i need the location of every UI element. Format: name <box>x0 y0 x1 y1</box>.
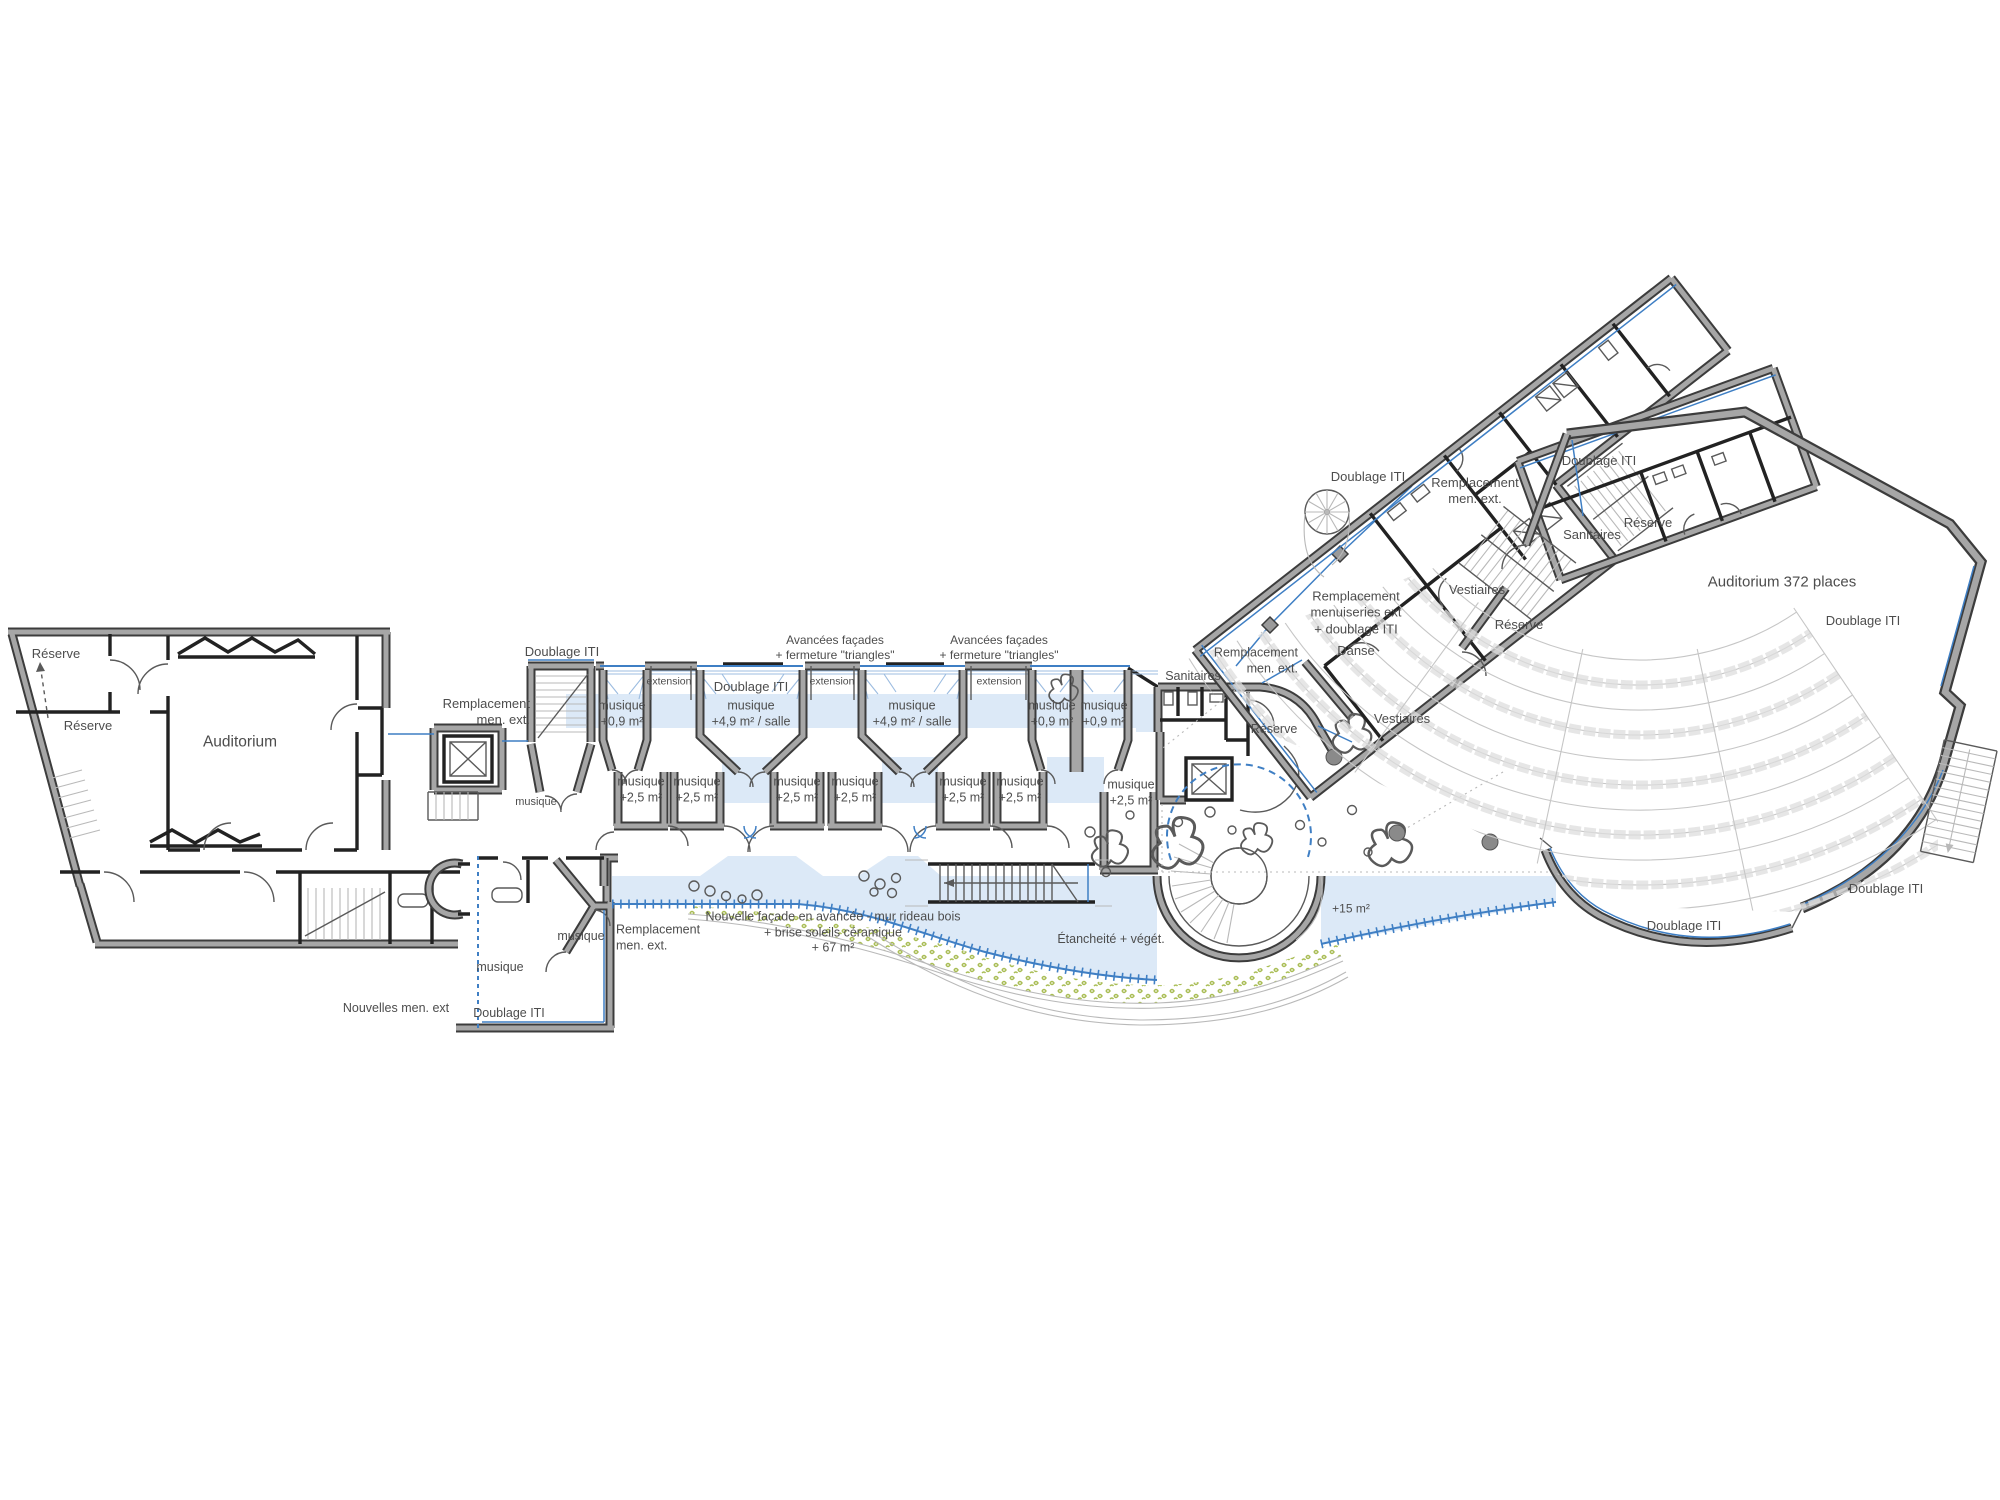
label-musique-annex-2: musique <box>476 960 523 976</box>
floor-plan-page: Réserve Réserve Auditorium Remplacement … <box>0 0 2000 1500</box>
label-vestiaires-2: Vestiaires <box>1374 711 1430 727</box>
label-musique-25-3: musique +2,5 m² <box>773 774 820 805</box>
label-doublage-iti-4: Doublage ITI <box>1562 453 1636 469</box>
label-repl-men-ext-4: Remplacement men. ext. <box>616 922 700 953</box>
label-etancheite: Étancheité + végét. <box>1057 932 1164 948</box>
label-vestiaires-1: Vestiaires <box>1449 582 1505 598</box>
auditorium-372 <box>1155 412 1997 942</box>
label-extension-1: extension <box>647 675 692 688</box>
label-avancees-1: Avancées façades + fermeture "triangles" <box>776 633 895 663</box>
label-musique-mini: musique <box>515 796 557 810</box>
label-doublage-iti-1: Doublage ITI <box>525 644 599 660</box>
label-musique-25-5: musique +2,5 m² <box>939 774 986 805</box>
floor-plan-drawing <box>0 0 2000 1500</box>
label-reserve-right-1: Réserve <box>1624 515 1672 531</box>
left-building <box>8 632 470 944</box>
label-repl-men-ext-2: Remplacement men. ext. <box>1214 645 1298 676</box>
stair-and-elevator-block <box>388 660 594 820</box>
label-musique-09-1: musique +0,9 m² <box>598 698 645 729</box>
dance-complex <box>1195 278 1786 797</box>
label-avancees-2: Avancées façades + fermeture "triangles" <box>940 633 1059 663</box>
label-doublage-iti-3: Doublage ITI <box>1331 469 1405 485</box>
label-auditorium-372: Auditorium 372 places <box>1708 574 1856 593</box>
label-doublage-iti-2: Doublage ITI <box>714 679 788 695</box>
label-extension-3: extension <box>977 675 1022 688</box>
label-auditorium-left: Auditorium <box>203 732 277 751</box>
label-nouvelle-facade: Nouvelle façade en avancée - mur rideau … <box>705 910 960 957</box>
label-doublage-iti-6: Doublage ITI <box>1849 881 1923 897</box>
label-danse: Danse <box>1337 643 1375 659</box>
label-doublage-iti-5: Doublage ITI <box>1826 613 1900 629</box>
label-extension-2: extension <box>810 675 855 688</box>
label-musique-annex-1: musique <box>557 929 604 945</box>
label-musique-25-6: musique +2,5 m² <box>996 774 1043 805</box>
label-repl-menuiseries: Remplacement menuiseries ext + doublage … <box>1310 589 1401 638</box>
label-repl-men-ext-1: Remplacement men. ext. <box>443 696 530 729</box>
label-doublage-iti-7: Doublage ITI <box>1647 918 1721 934</box>
label-reserve-left-1: Réserve <box>32 646 80 662</box>
label-musique-49-1: musique +4,9 m² / salle <box>712 698 791 729</box>
label-musique-09-2: musique +0,9 m² <box>1028 698 1075 729</box>
label-plus-15: +15 m² <box>1332 902 1370 917</box>
label-musique-49-2: musique +4,9 m² / salle <box>873 698 952 729</box>
label-musique-25-7: musique +2,5 m² <box>1107 777 1154 808</box>
label-musique-25-1: musique +2,5 m² <box>617 774 664 805</box>
label-nouvelles-men-ext: Nouvelles men. ext <box>343 1001 449 1017</box>
label-musique-09-3: musique +0,9 m² <box>1080 698 1127 729</box>
label-sanitaires-2: Sanitaires <box>1563 527 1621 543</box>
label-reserve-left-2: Réserve <box>64 718 112 734</box>
label-sanitaires-1: Sanitaires <box>1165 669 1221 685</box>
label-reserve-right-2: Réserve <box>1495 617 1543 633</box>
label-reserve-mid: Réserve <box>1251 722 1298 738</box>
label-repl-men-ext-3: Remplacement men. ext. <box>1431 475 1518 508</box>
label-musique-25-4: musique +2,5 m² <box>831 774 878 805</box>
label-musique-25-2: musique +2,5 m² <box>673 774 720 805</box>
reference-lines <box>1162 690 1556 872</box>
label-doublage-iti-8: Doublage ITI <box>473 1006 545 1022</box>
